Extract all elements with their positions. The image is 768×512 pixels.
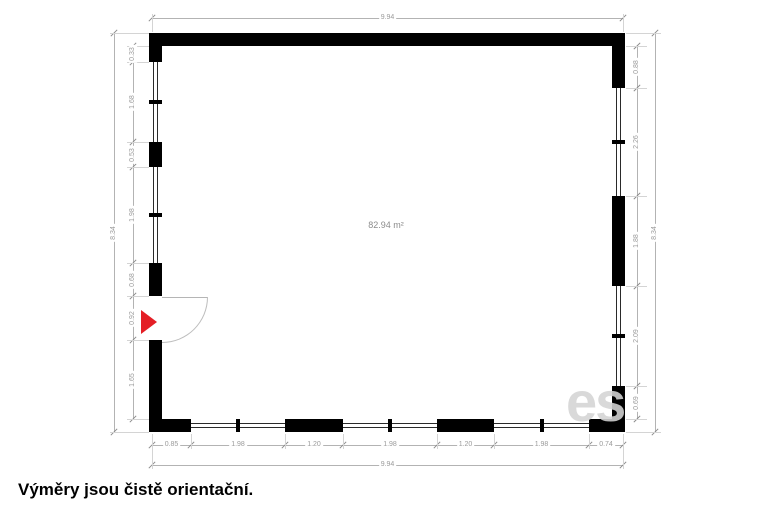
extension-line — [437, 434, 438, 449]
extension-line — [626, 419, 647, 420]
dimension-label: 1.98 — [129, 206, 137, 224]
dimension-label: 8.34 — [651, 224, 659, 242]
dimension-label: 1.20 — [305, 441, 323, 449]
dimension-label: 9.94 — [379, 14, 397, 22]
dimension-label: 1.98 — [533, 441, 551, 449]
extension-line — [626, 386, 647, 387]
dimension-label: 0.74 — [597, 441, 615, 449]
extension-line — [626, 432, 661, 433]
extension-line — [285, 434, 286, 449]
dimension-label: 2.09 — [633, 327, 641, 345]
extension-line — [343, 434, 344, 449]
dimension-label: 0.53 — [129, 146, 137, 164]
extension-line — [626, 88, 647, 89]
extension-line — [623, 434, 624, 469]
extension-line — [626, 46, 647, 47]
dimension-label: 0.88 — [633, 58, 641, 76]
extension-line — [191, 434, 192, 449]
extension-line — [127, 263, 149, 264]
extension-line — [152, 434, 153, 469]
dimension-label: 0.92 — [129, 309, 137, 327]
dimension-label: 0.69 — [633, 394, 641, 412]
dimension-label: 9.94 — [379, 461, 397, 469]
dimension-label: 1.98 — [229, 441, 247, 449]
extension-line — [589, 434, 590, 449]
extension-line — [494, 434, 495, 449]
dimension-label: 0.85 — [163, 441, 181, 449]
extension-line — [127, 296, 149, 297]
dimension-label: 1.88 — [633, 232, 641, 250]
extension-line — [127, 419, 149, 420]
extension-line — [110, 33, 149, 34]
dimension-label: 0.33 — [129, 45, 137, 63]
extension-line — [623, 14, 624, 32]
watermark-fragment: es — [566, 374, 624, 430]
extension-line — [127, 167, 149, 168]
dimension-label: 1.68 — [129, 93, 137, 111]
extension-line — [127, 340, 149, 341]
dimension-label: 0.68 — [129, 271, 137, 289]
dimension-label: 1.98 — [381, 441, 399, 449]
dimension-layer: 0.851.981.201.981.201.980.740.331.680.53… — [0, 0, 768, 512]
extension-line — [626, 33, 661, 34]
extension-line — [626, 196, 647, 197]
dimension-label: 1.20 — [457, 441, 475, 449]
extension-line — [127, 142, 149, 143]
caption-text: Výměry jsou čistě orientační. — [18, 480, 253, 500]
dimension-label: 2.26 — [633, 133, 641, 151]
dimension-label: 1.65 — [129, 371, 137, 389]
floorplan-canvas: 0.851.981.201.981.201.980.740.331.680.53… — [0, 0, 768, 512]
extension-line — [152, 14, 153, 32]
extension-line — [110, 432, 149, 433]
room-area-label: 82.94 m² — [340, 220, 432, 230]
dimension-label: 8.34 — [110, 224, 118, 242]
extension-line — [626, 286, 647, 287]
